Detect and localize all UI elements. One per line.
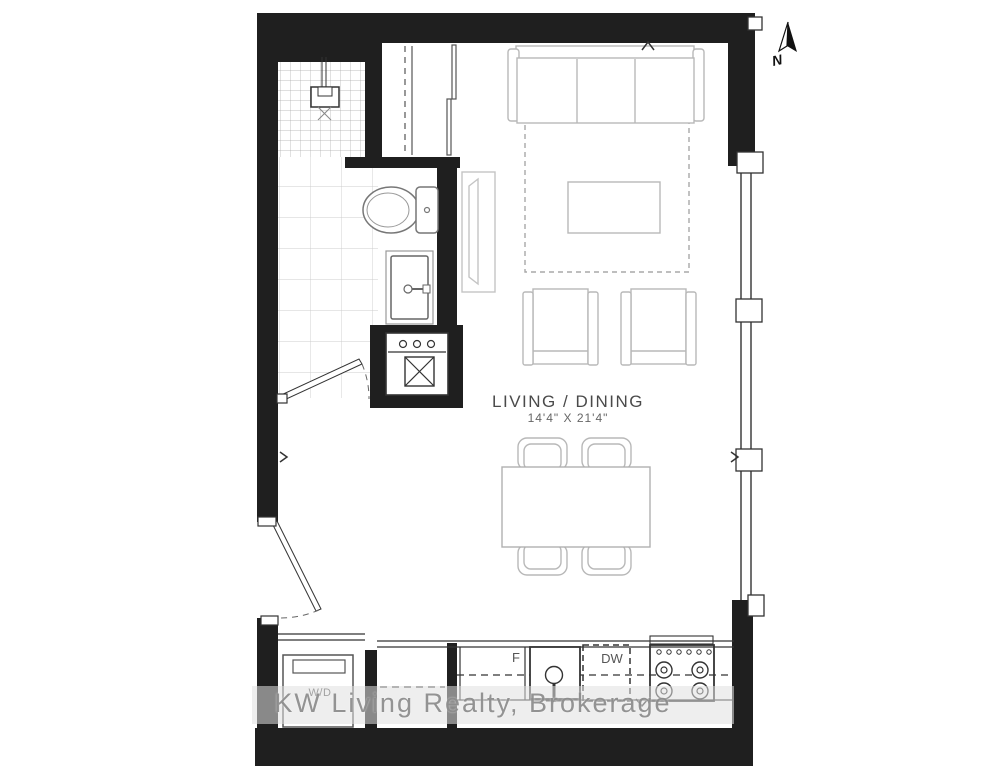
floor-plan-drawing <box>0 0 1008 778</box>
living-furniture <box>462 46 704 575</box>
utility-appliance <box>386 333 448 395</box>
room-name-label: LIVING / DINING <box>492 392 644 412</box>
floor-plan: LIVING / DINING 14'4" X 21'4" F DW W/D N… <box>0 0 1008 778</box>
window-mullion-1 <box>736 299 762 322</box>
wall-right-upper <box>728 13 755 166</box>
bathroom-vanity <box>386 251 433 324</box>
wall-bottom <box>255 728 753 766</box>
wall-left-upper <box>257 13 278 522</box>
dishwasher-label: DW <box>601 651 623 666</box>
toilet <box>363 187 438 233</box>
closet <box>405 45 456 155</box>
armchair-left <box>523 289 598 365</box>
closet-slider-panel-1 <box>452 45 456 99</box>
window-mullion-2 <box>736 449 762 471</box>
entry-door <box>272 521 321 618</box>
wall-right-lower <box>732 600 753 766</box>
room-dimensions-label: 14'4" X 21'4" <box>528 411 609 425</box>
wall-bathroom-right <box>437 157 457 327</box>
media-console <box>462 172 495 292</box>
wall-top <box>257 13 755 43</box>
fridge-label: F <box>512 650 520 665</box>
wall-end-cap-topright <box>748 17 762 30</box>
bathroom-floor-tiles <box>278 157 378 398</box>
north-arrow-icon <box>779 22 797 52</box>
sofa <box>508 46 704 123</box>
coffee-table <box>568 182 660 233</box>
watermark-text: KW Living Realty, Brokerage <box>274 688 671 719</box>
dining-table <box>502 467 650 547</box>
window-end-cap-bottom <box>748 595 764 616</box>
armchair-right <box>621 289 696 365</box>
faucet-icon <box>404 285 412 293</box>
wall-shower-right <box>365 43 382 157</box>
marker-left-chevron-icon <box>280 452 287 462</box>
closet-slider-panel-2 <box>447 99 451 155</box>
window-end-cap-top <box>737 152 763 173</box>
